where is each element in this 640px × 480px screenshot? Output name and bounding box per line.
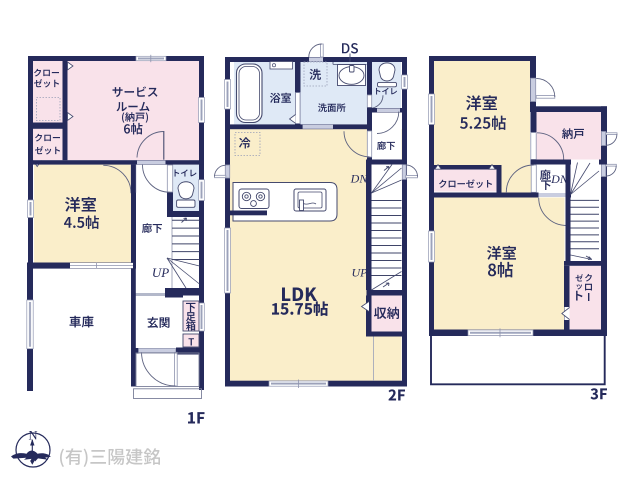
svg-text:DN: DN xyxy=(550,172,569,186)
svg-text:UP: UP xyxy=(152,265,169,280)
svg-text:N: N xyxy=(28,429,37,443)
svg-text:DN: DN xyxy=(350,172,369,186)
svg-text:UP: UP xyxy=(352,266,369,280)
